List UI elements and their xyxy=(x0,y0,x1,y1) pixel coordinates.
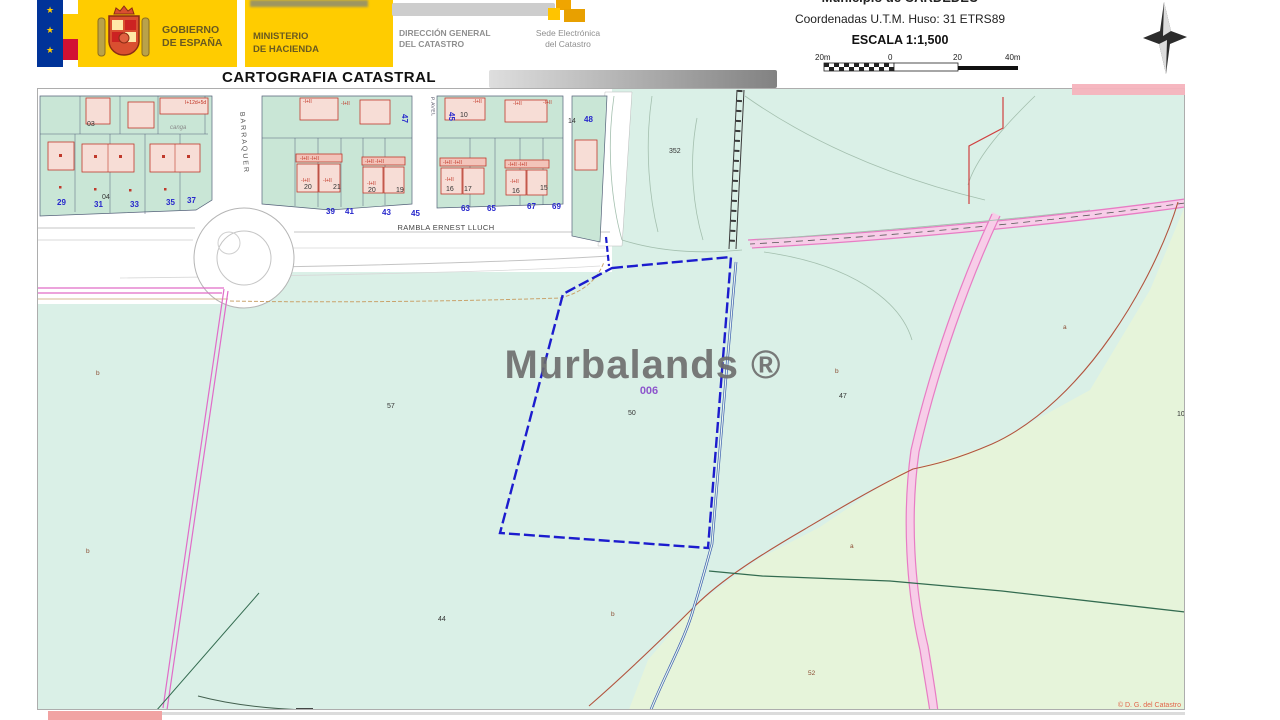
map-label: 57 xyxy=(387,403,395,410)
map-label: 03 xyxy=(87,121,95,128)
map-label: 16 xyxy=(512,188,520,195)
map-label: -I+II xyxy=(513,101,522,107)
map-label: -I+II -I+II xyxy=(365,159,384,165)
map-label: 10 xyxy=(460,112,468,119)
map-label: 33 xyxy=(130,200,139,209)
scale-tick: 20m xyxy=(815,53,831,62)
map-label: 48 xyxy=(584,115,593,124)
map-label: 35 xyxy=(166,198,175,207)
map-label: 14 xyxy=(568,118,576,125)
scale-tick: 40m xyxy=(1005,53,1021,62)
map-label: 44 xyxy=(438,616,446,623)
cadastral-map: 20m 0 20 40m xyxy=(0,0,1280,720)
map-label: 50 xyxy=(628,410,636,417)
map-label: canga xyxy=(170,125,187,131)
map-label: 39 xyxy=(326,207,335,216)
map-label: -I+II xyxy=(473,99,482,105)
map-label: -I+II -I+II xyxy=(300,156,319,162)
map-label: a xyxy=(850,543,854,550)
map-label: 43 xyxy=(382,208,391,217)
map-label: 45 xyxy=(447,112,456,121)
map-label: 20 xyxy=(368,187,376,194)
map-label: -I+II xyxy=(445,177,454,183)
map-label: -I+II -I+II xyxy=(443,160,462,166)
map-label: -I+II xyxy=(341,101,350,107)
map-label: 47 xyxy=(400,114,409,123)
street-name-passage: P.AVEL xyxy=(429,97,436,117)
redaction-bar-topright xyxy=(1072,84,1185,95)
map-label: I+12d+5d xyxy=(185,100,206,106)
map-label: 63 xyxy=(461,204,470,213)
north-compass-icon xyxy=(1143,2,1187,74)
map-label: 31 xyxy=(94,200,103,209)
map-label: 10 xyxy=(1177,411,1185,418)
map-label: 47 xyxy=(839,393,847,400)
map-label: 41 xyxy=(345,207,354,216)
map-label: -I+II xyxy=(301,178,310,184)
watermark: Murbalands ® xyxy=(504,343,781,387)
map-label: -I+II xyxy=(367,181,376,187)
map-label: b xyxy=(86,548,90,555)
scale-tick: 0 xyxy=(888,53,893,62)
copyright-label: © D. G. del Catastro xyxy=(1118,701,1181,709)
street-name-rambla: RAMBLA ERNEST LLUCH xyxy=(397,223,494,232)
map-label: 20 xyxy=(304,184,312,191)
map-label: 37 xyxy=(187,196,196,205)
map-label: b xyxy=(835,368,839,375)
redaction-bar-bottomleft xyxy=(48,711,162,720)
map-label: -I+II xyxy=(303,99,312,105)
map-label: 352 xyxy=(669,148,681,155)
map-label: 15 xyxy=(540,185,548,192)
map-label: a xyxy=(1063,324,1067,331)
map-label: 17 xyxy=(464,186,472,193)
parcel-ref-label: 006 xyxy=(640,385,658,397)
map-label: 19 xyxy=(396,187,404,194)
bottom-strip xyxy=(162,712,1185,715)
map-label: 52 xyxy=(808,670,816,677)
map-label: 04 xyxy=(102,194,110,201)
map-label: -I+II xyxy=(543,100,552,106)
scale-tick: 20 xyxy=(953,53,962,62)
map-label: -I+II -I+II xyxy=(508,162,527,168)
scale-bar: 20m 0 20 40m xyxy=(815,53,1021,71)
map-label: 16 xyxy=(446,186,454,193)
map-label: b xyxy=(611,611,615,618)
map-label: -I+II xyxy=(510,179,519,185)
map-label: 45 xyxy=(411,209,420,218)
map-label: -I+II xyxy=(323,178,332,184)
map-label: b xyxy=(96,370,100,377)
map-label: 65 xyxy=(487,204,496,213)
map-label: 69 xyxy=(552,202,561,211)
map-label: 21 xyxy=(333,184,341,191)
map-label: 67 xyxy=(527,202,536,211)
map-label: 29 xyxy=(57,198,66,207)
